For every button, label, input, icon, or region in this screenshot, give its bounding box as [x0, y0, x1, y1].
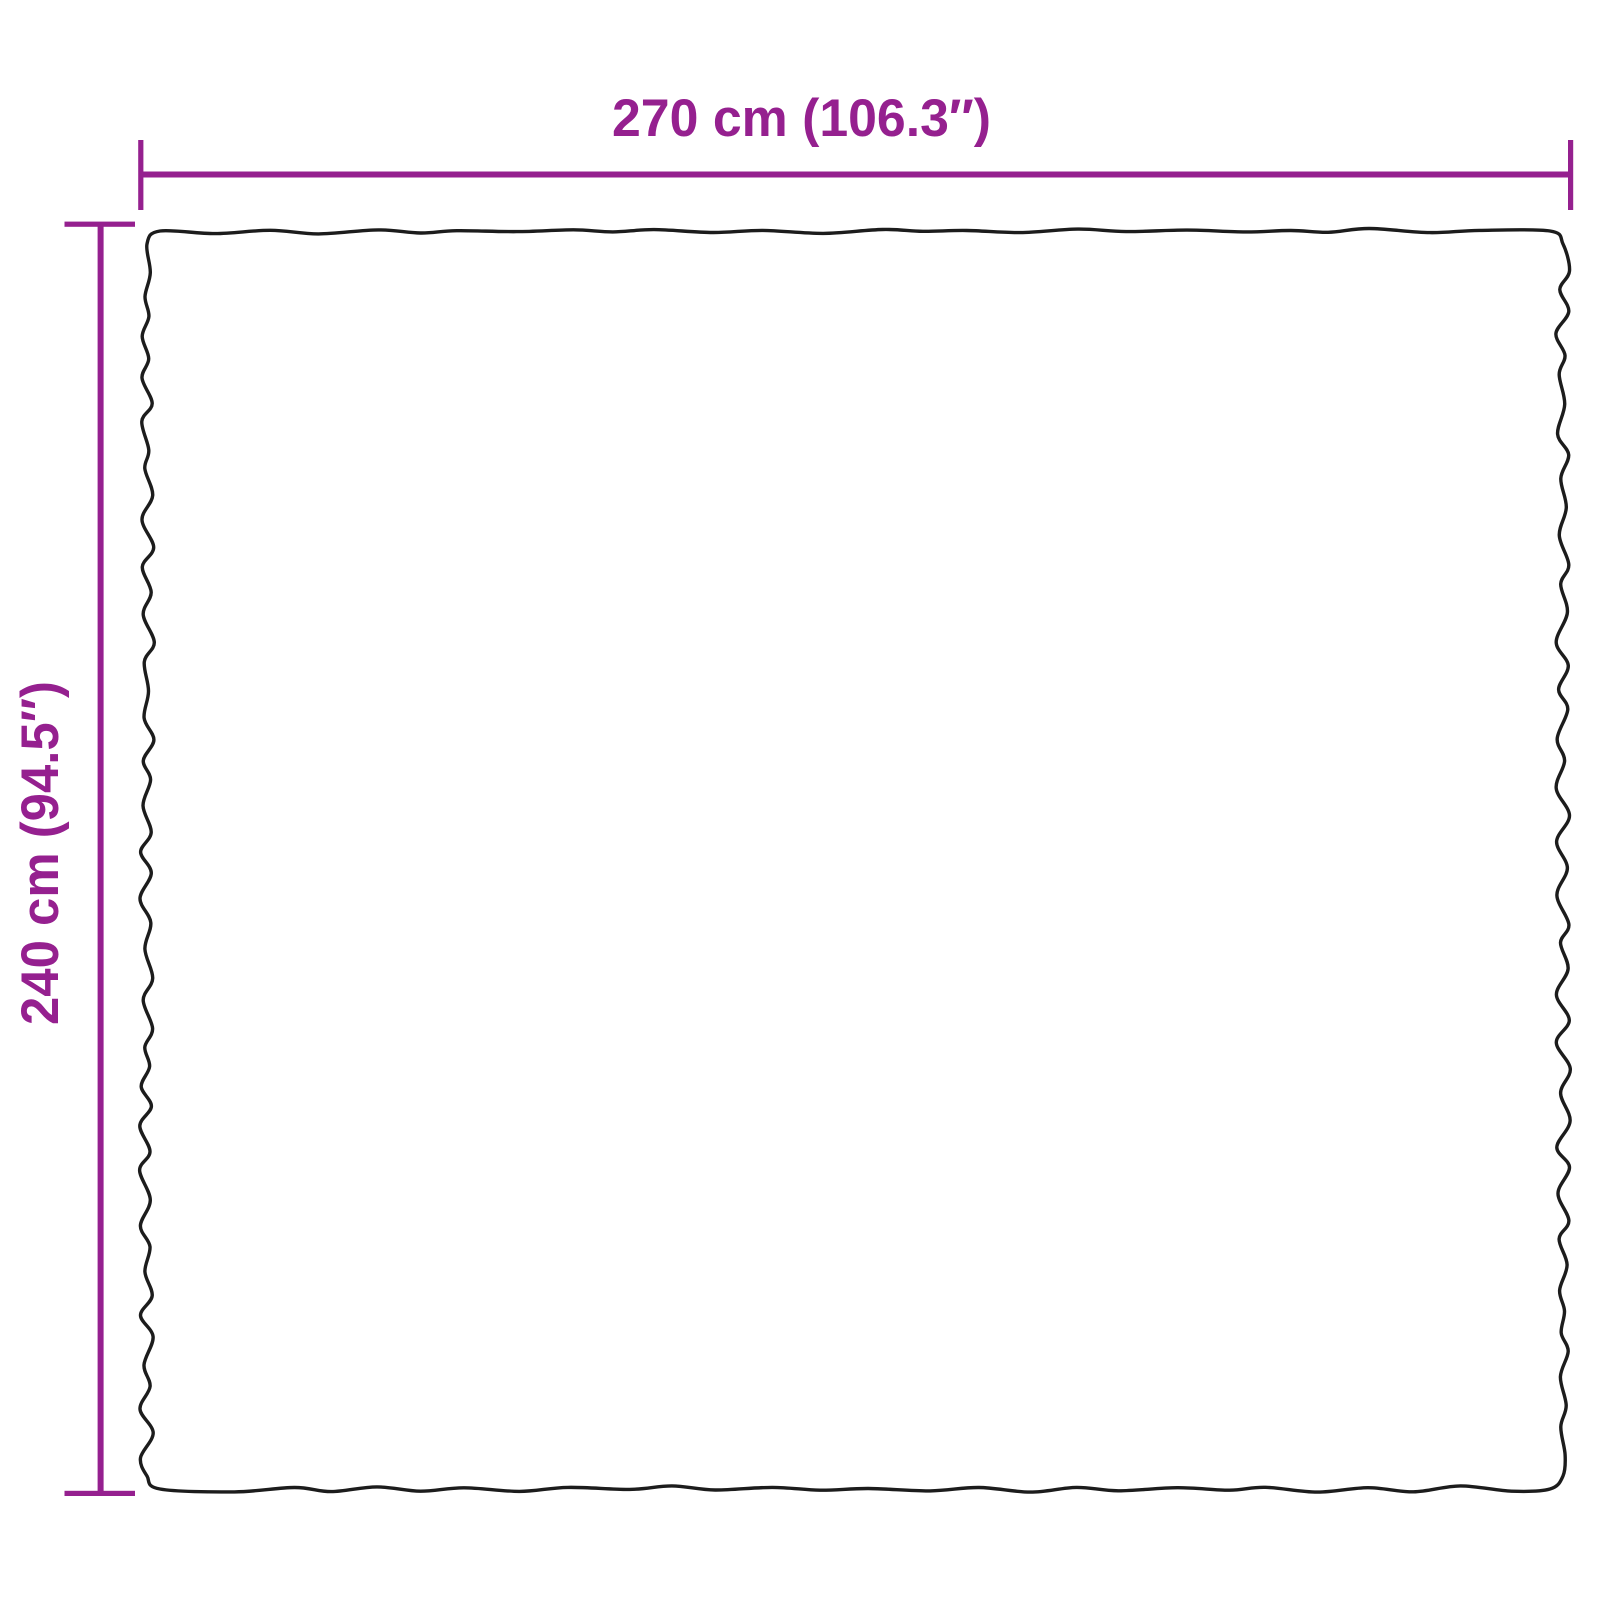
svg-text:240 cm (94.5″): 240 cm (94.5″) — [11, 681, 70, 1025]
svg-text:270 cm (106.3″): 270 cm (106.3″) — [612, 89, 991, 148]
